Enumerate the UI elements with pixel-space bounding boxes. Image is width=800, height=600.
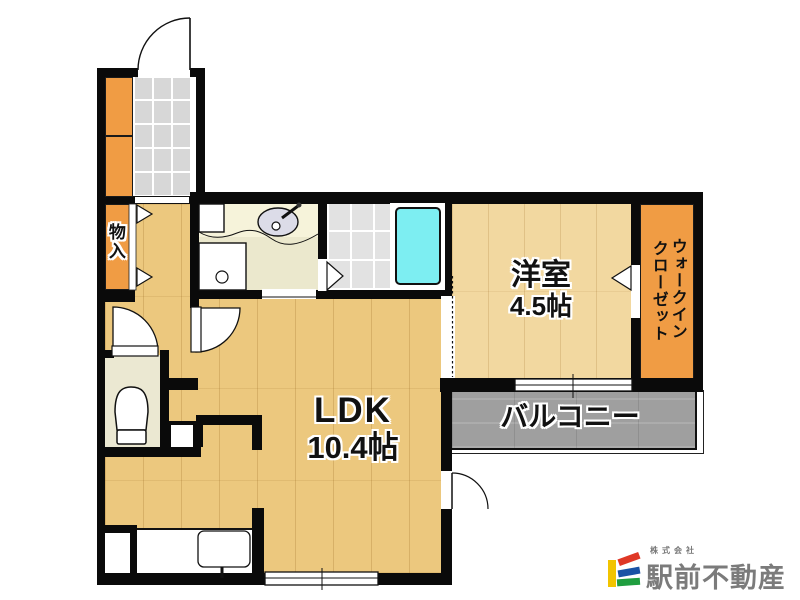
- storage-door-arrow-bottom: [137, 268, 152, 286]
- western-room-size: 4.5帖: [481, 293, 601, 320]
- storage-label: 物入: [106, 223, 124, 261]
- toilet-bowl: [115, 387, 148, 430]
- washroom-cabinet: [199, 204, 224, 232]
- balcony-label: バルコニー: [460, 402, 680, 431]
- toilet-door-leaf: [112, 346, 158, 356]
- toilet-tank: [117, 430, 146, 444]
- bathroom-door-arrow: [327, 262, 343, 290]
- entrance-door-opening: [138, 68, 190, 78]
- closet-door-opening: [631, 265, 640, 318]
- walk-in-closet-label-right: ウォークイン: [668, 238, 685, 340]
- entrance-door-arc: [138, 18, 190, 70]
- ldk-size: 10.4帖: [283, 432, 423, 465]
- logo-bar-red: [617, 552, 640, 566]
- closet-door-arrow: [612, 266, 631, 290]
- washbasin-drain: [272, 222, 280, 230]
- ldk-label: LDK: [283, 393, 423, 430]
- washing-machine-drain: [216, 271, 228, 283]
- logo-bar-blue: [618, 567, 641, 578]
- logo-bar-green: [617, 578, 640, 587]
- toilet-door-arc: [113, 307, 158, 352]
- ldk-exterior-door-opening: [441, 471, 452, 509]
- storage-door-arrow-top: [137, 205, 152, 223]
- bathroom-door-opening: [318, 259, 327, 291]
- floorplan: 物入 洋室 4.5帖 ウォークイン クローゼット LDK 10.4帖 バルコニー…: [0, 0, 800, 600]
- kitchen-sink: [198, 531, 250, 567]
- ldk-door-arc: [196, 308, 240, 352]
- walk-in-closet-label-left: クローゼット: [649, 240, 666, 342]
- bathtub: [396, 208, 440, 284]
- logo-company-prefix: 株式会社: [650, 545, 698, 556]
- washbasin-faucet-handle: [297, 203, 302, 208]
- storage-door-strip: [129, 204, 136, 290]
- logo-bar-yellow: [608, 560, 616, 587]
- western-room-label: 洋室: [481, 260, 601, 292]
- ldk-door-leaf: [191, 307, 201, 352]
- company-logo-mark: [608, 552, 641, 587]
- ldk-exterior-door-arc: [452, 473, 488, 509]
- logo-company-name: 駅前不動産: [646, 556, 786, 595]
